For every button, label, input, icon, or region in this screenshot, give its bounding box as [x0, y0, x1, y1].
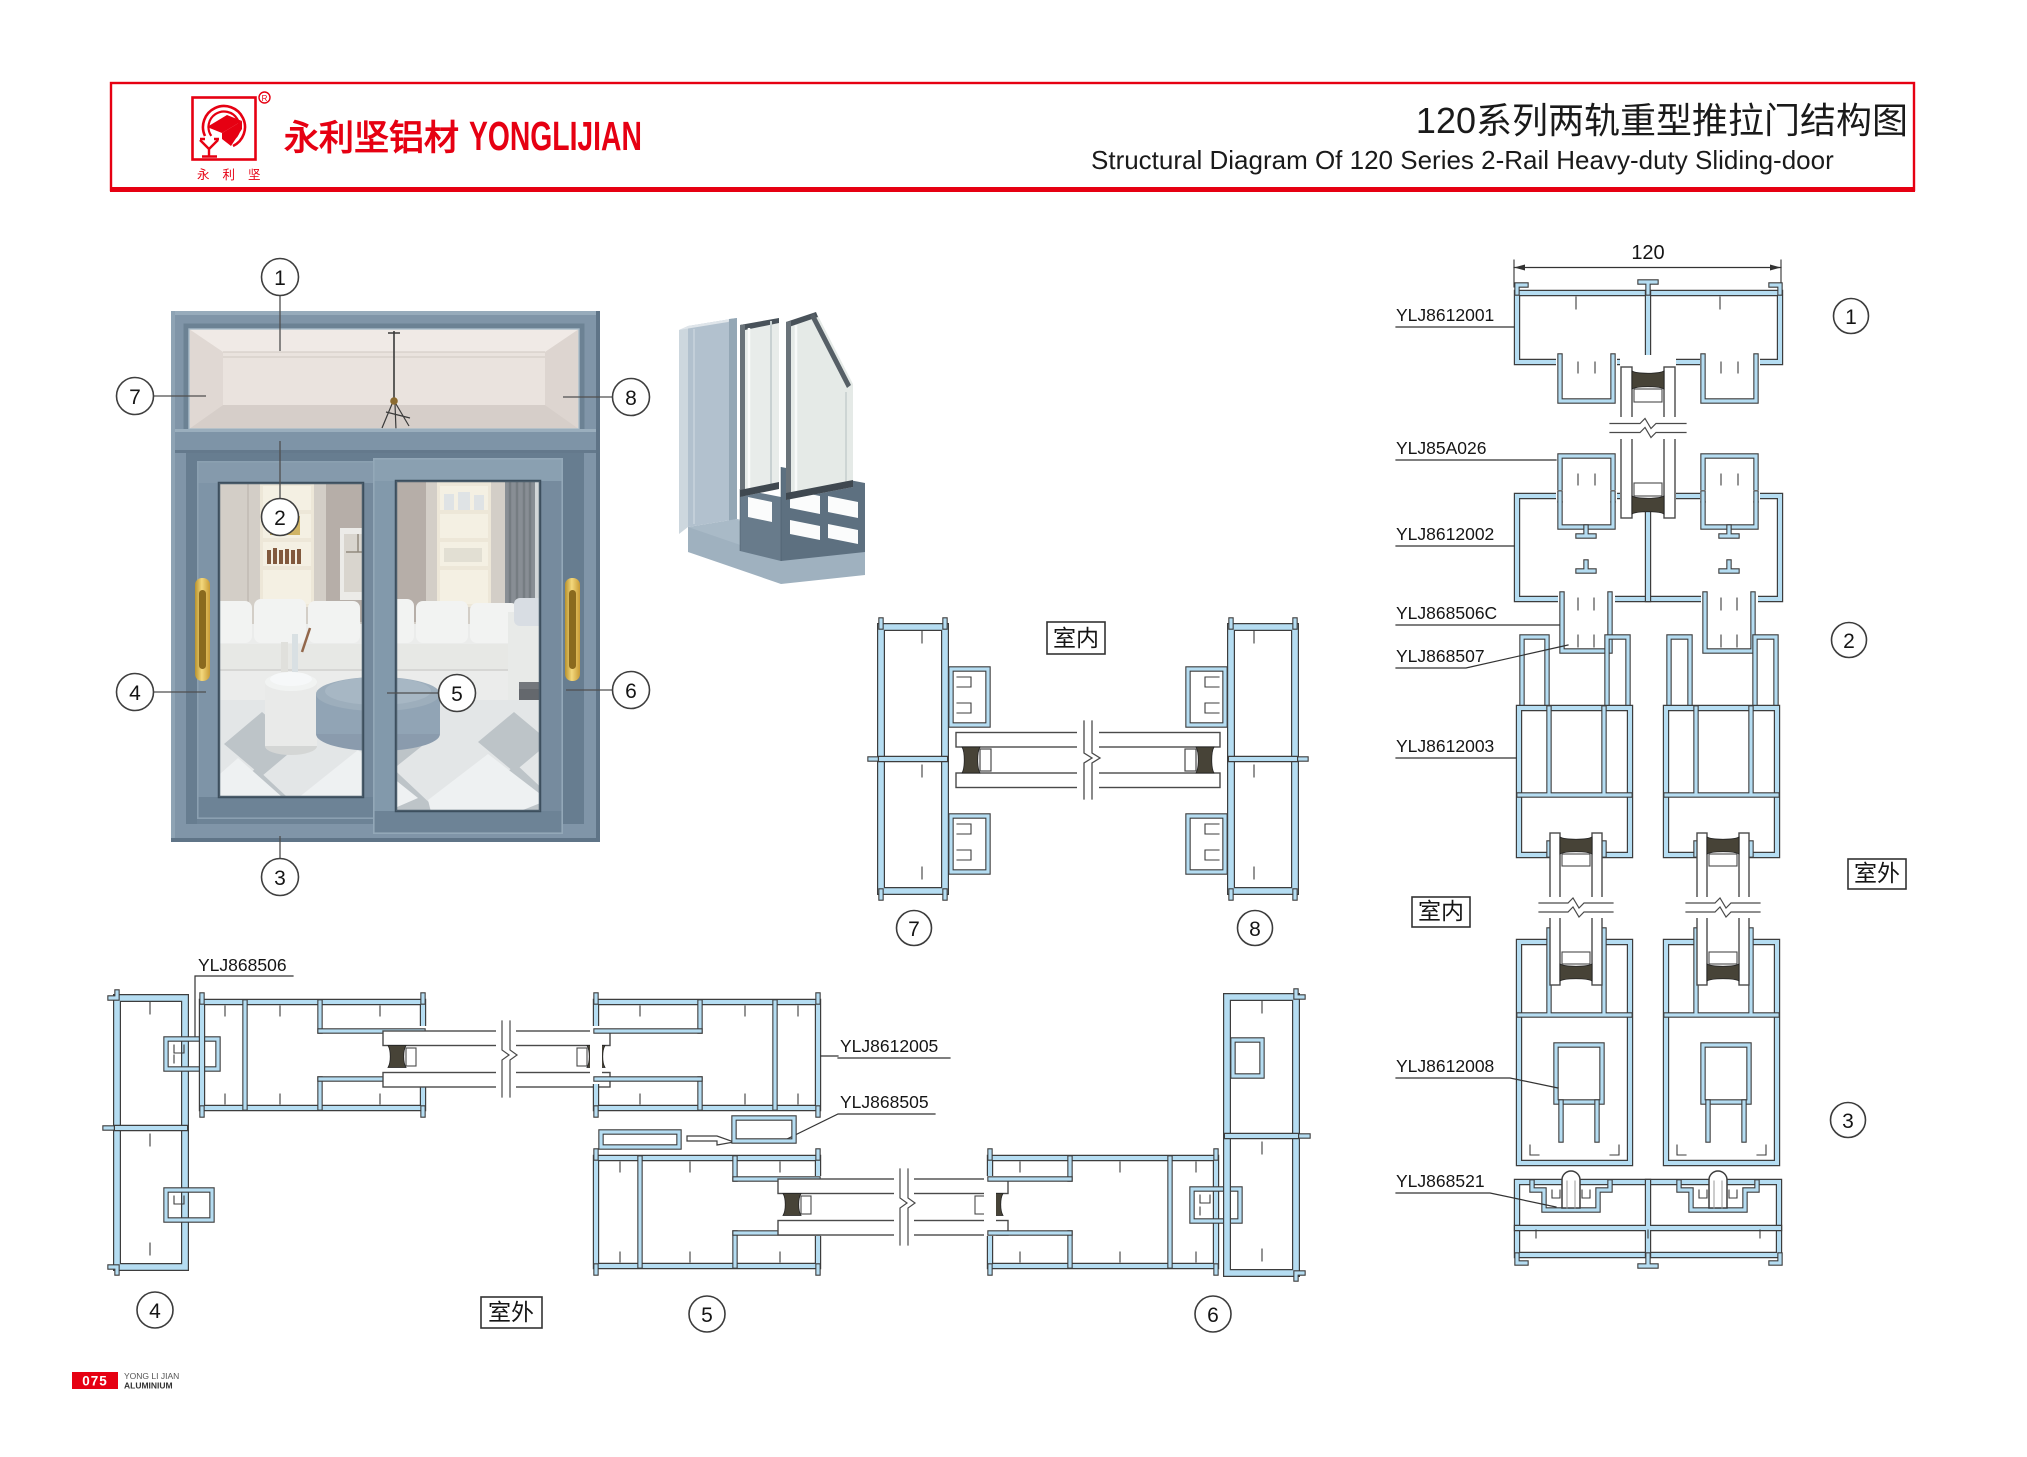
svg-text:YLJ8612008: YLJ8612008	[1396, 1056, 1494, 1076]
svg-text:室内: 室内	[1053, 625, 1099, 651]
svg-text:5: 5	[451, 683, 463, 706]
svg-text:YONG LI JIAN: YONG LI JIAN	[124, 1371, 179, 1381]
svg-text:YLJ868506: YLJ868506	[198, 955, 287, 975]
svg-text:室外: 室外	[1854, 860, 1900, 886]
svg-text:120: 120	[1631, 242, 1664, 264]
svg-text:2: 2	[1843, 630, 1855, 653]
svg-text:永利坚铝材: 永利坚铝材	[284, 119, 459, 158]
svg-text:7: 7	[908, 918, 920, 941]
svg-text:YLJ868506C: YLJ868506C	[1396, 603, 1497, 623]
svg-text:YLJ8612001: YLJ8612001	[1396, 305, 1494, 325]
svg-text:YLJ868505: YLJ868505	[840, 1092, 929, 1112]
svg-text:075: 075	[82, 1374, 108, 1389]
svg-text:7: 7	[129, 386, 141, 409]
svg-text:120系列两轨重型推拉门结构图: 120系列两轨重型推拉门结构图	[1416, 100, 1908, 141]
svg-text:6: 6	[625, 680, 637, 703]
svg-text:5: 5	[701, 1304, 713, 1327]
svg-text:3: 3	[274, 867, 286, 890]
svg-text:YLJ85A026: YLJ85A026	[1396, 438, 1487, 458]
svg-text:4: 4	[129, 682, 141, 705]
svg-text:2: 2	[274, 507, 286, 530]
svg-text:Structural Diagram Of 120 Seri: Structural Diagram Of 120 Series 2-Rail …	[1091, 145, 1834, 175]
svg-text:R: R	[262, 94, 268, 103]
svg-text:8: 8	[625, 387, 637, 410]
svg-text:YLJ8612005: YLJ8612005	[840, 1036, 938, 1056]
svg-text:ALUMINIUM: ALUMINIUM	[124, 1381, 173, 1391]
svg-text:室外: 室外	[488, 1299, 534, 1325]
svg-text:3: 3	[1842, 1110, 1854, 1133]
svg-text:YLJ8612002: YLJ8612002	[1396, 524, 1494, 544]
svg-text:YLJ868507: YLJ868507	[1396, 646, 1485, 666]
svg-text:4: 4	[149, 1300, 161, 1323]
svg-text:YLJ868521: YLJ868521	[1396, 1171, 1485, 1191]
svg-text:1: 1	[274, 267, 286, 290]
svg-text:6: 6	[1207, 1304, 1219, 1327]
svg-text:YONGLIJIAN: YONGLIJIAN	[469, 114, 642, 159]
svg-text:1: 1	[1845, 306, 1857, 329]
svg-text:8: 8	[1249, 918, 1261, 941]
svg-text:YLJ8612003: YLJ8612003	[1396, 736, 1494, 756]
svg-text:室内: 室内	[1418, 898, 1464, 924]
svg-text:永利坚: 永利坚	[197, 168, 274, 182]
